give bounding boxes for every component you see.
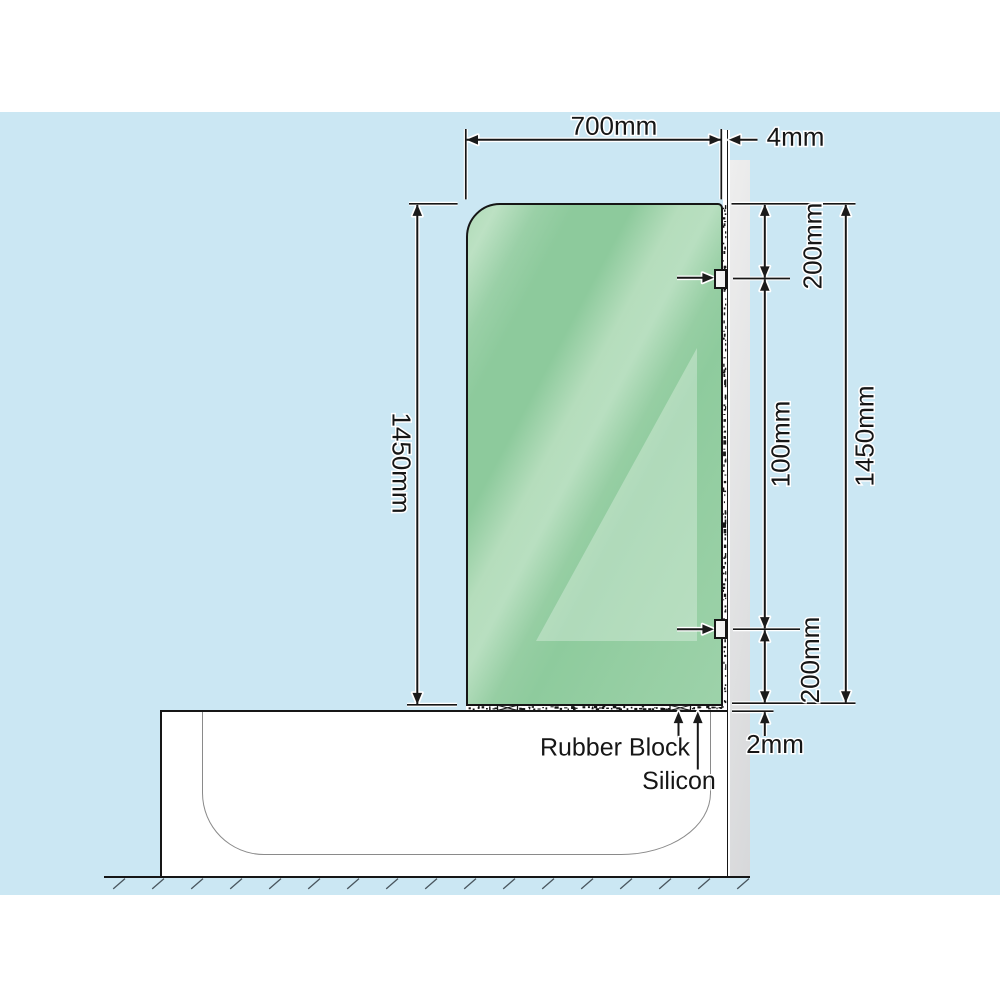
svg-text:100mm: 100mm xyxy=(766,401,796,488)
svg-text:4mm: 4mm xyxy=(767,122,825,152)
svg-text:1450mm: 1450mm xyxy=(850,385,880,486)
svg-text:200mm: 200mm xyxy=(798,203,828,290)
svg-text:200mm: 200mm xyxy=(795,617,825,704)
svg-text:Rubber Block: Rubber Block xyxy=(540,733,691,761)
svg-text:1450mm: 1450mm xyxy=(387,412,417,513)
svg-text:2mm: 2mm xyxy=(746,729,804,759)
svg-text:700mm: 700mm xyxy=(571,111,658,141)
svg-text:Silicon: Silicon xyxy=(642,767,716,795)
